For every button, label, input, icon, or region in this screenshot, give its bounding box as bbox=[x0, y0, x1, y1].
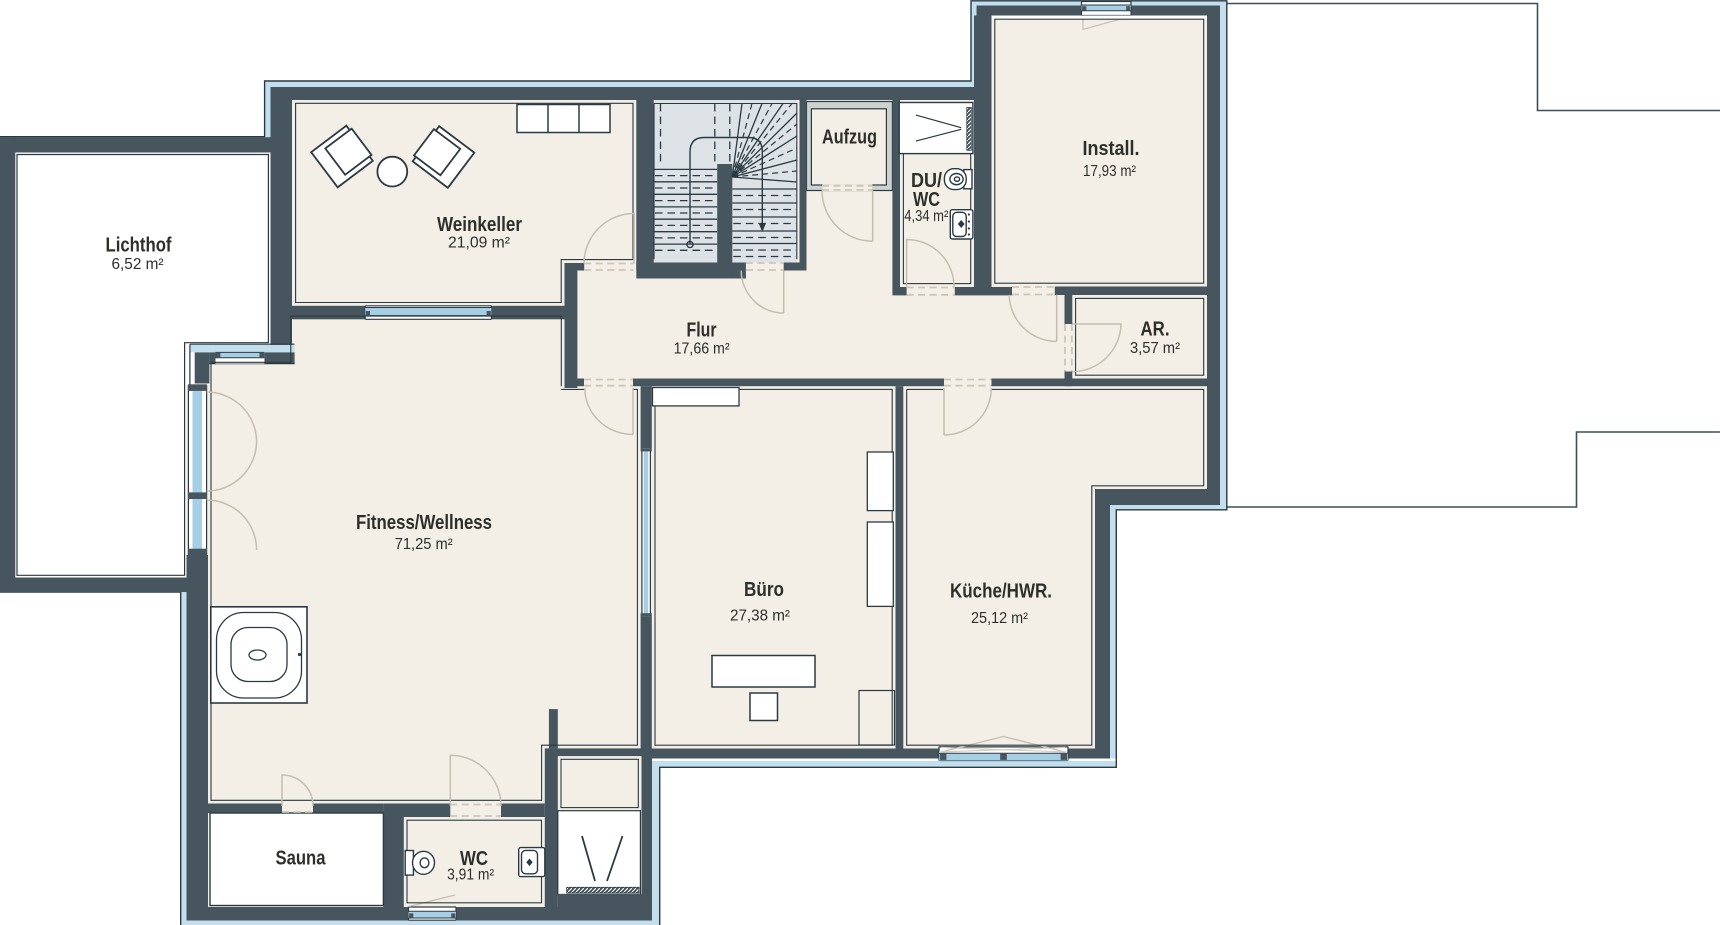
svg-text:Aufzug: Aufzug bbox=[822, 126, 877, 148]
svg-text:21,09 m²: 21,09 m² bbox=[448, 235, 510, 252]
svg-text:Küche/HWR.: Küche/HWR. bbox=[950, 581, 1052, 603]
svg-text:Lichthof: Lichthof bbox=[106, 235, 172, 257]
svg-text:Flur: Flur bbox=[687, 319, 717, 341]
svg-text:Sauna: Sauna bbox=[276, 848, 327, 870]
svg-text:17,66 m²: 17,66 m² bbox=[674, 341, 730, 358]
svg-text:17,93 m²: 17,93 m² bbox=[1083, 163, 1136, 180]
svg-text:Büro: Büro bbox=[744, 579, 784, 601]
svg-text:25,12 m²: 25,12 m² bbox=[971, 610, 1028, 627]
svg-text:AR.: AR. bbox=[1141, 319, 1170, 341]
svg-text:Fitness/Wellness: Fitness/Wellness bbox=[356, 512, 492, 534]
svg-text:4,34 m²: 4,34 m² bbox=[904, 208, 948, 225]
svg-text:27,38 m²: 27,38 m² bbox=[730, 608, 790, 625]
svg-text:Install.: Install. bbox=[1083, 138, 1140, 160]
svg-text:71,25 m²: 71,25 m² bbox=[395, 536, 453, 553]
svg-text:Weinkeller: Weinkeller bbox=[437, 214, 522, 236]
svg-text:3,57 m²: 3,57 m² bbox=[1130, 340, 1180, 357]
svg-text:3,91 m²: 3,91 m² bbox=[447, 867, 494, 884]
svg-text:6,52 m²: 6,52 m² bbox=[112, 256, 164, 273]
